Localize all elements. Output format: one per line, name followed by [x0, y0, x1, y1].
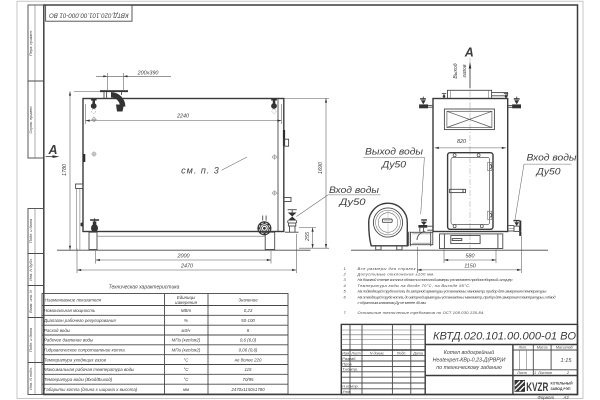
svg-text:мм: мм: [183, 387, 189, 392]
svg-text:1: 1: [534, 371, 536, 375]
svg-text:Ду50: Ду50: [535, 167, 560, 177]
svg-text:Разраб.: Разраб.: [342, 356, 356, 361]
svg-text:°С: °С: [184, 367, 190, 372]
svg-text:Инв. N подл.: Инв. N подл.: [28, 367, 33, 390]
svg-text:КВТД.020.101.00.000-01 ВО: КВТД.020.101.00.000-01 ВО: [433, 330, 576, 342]
svg-text:Техническая характеристика: Техническая характеристика: [109, 284, 180, 290]
svg-text:°С: °С: [184, 377, 190, 382]
svg-text:580: 580: [466, 254, 475, 260]
svg-text:255: 255: [305, 231, 311, 242]
svg-text:Вход воды: Вход воды: [329, 185, 379, 195]
svg-text:Расход воды: Расход воды: [44, 328, 71, 333]
svg-text:Котел водогрейный: Котел водогрейный: [444, 349, 494, 356]
svg-text:На подводящей трубе котла, до: На подводящей трубе котла, до запорной а…: [358, 289, 547, 294]
svg-text:1: 1: [344, 266, 346, 271]
svg-text:КВТД.020.101.00.000-01 ВО: КВТД.020.101.00.000-01 ВО: [49, 11, 129, 18]
svg-text:Температура воды (Вход/Выход): Температура воды (Вход/Выход): [44, 377, 113, 382]
svg-text:Инв. N дубл.: Инв. N дубл.: [28, 258, 33, 281]
svg-text:Формат: Формат: [538, 395, 555, 400]
svg-text:Подп. и дата: Подп. и дата: [28, 327, 33, 352]
svg-text:Изм: Изм: [342, 351, 349, 355]
svg-text:с обратным клапаном Ду не мене: с обратным клапаном Ду не менее 40 мм.: [358, 300, 427, 305]
svg-text:Перв. примен.: Перв. примен.: [28, 30, 33, 56]
svg-text:Гидравлическое сопротивление к: Гидравлическое сопротивление котла: [44, 348, 125, 353]
svg-text:Диапазон рабочего регулировани: Диапазон рабочего регулирования: [43, 318, 116, 323]
svg-text:На боковой стенке котла в обла: На боковой стенке котла в области топочн…: [358, 277, 514, 282]
svg-text:Выход воды: Выход воды: [365, 147, 423, 157]
svg-text:0,06 (0,6): 0,06 (0,6): [239, 348, 258, 353]
svg-text:см. п. 3: см. п. 3: [181, 166, 220, 176]
svg-text:0,6 (6,0): 0,6 (6,0): [240, 338, 257, 343]
svg-text:КОТЕЛЬНЫЙ: КОТЕЛЬНЫЙ: [551, 382, 574, 386]
svg-text:Допустимые отклонения ±100 мм.: Допустимые отклонения ±100 мм.: [357, 272, 435, 277]
svg-text:Значение: Значение: [238, 297, 258, 302]
svg-text:А3: А3: [563, 395, 570, 400]
svg-text:70/95: 70/95: [243, 377, 255, 382]
svg-text:Пров.: Пров.: [342, 361, 352, 366]
svg-text:газов: газов: [462, 64, 468, 77]
svg-text:N докум.: N докум.: [370, 351, 385, 355]
svg-text:Наименование показателя: Наименование показателя: [45, 297, 102, 302]
svg-text:Выход: Выход: [453, 63, 459, 78]
svg-text:Все размеры для справок: Все размеры для справок: [358, 266, 417, 271]
svg-text:Температура воды на Входе 70°С: Температура воды на Входе 70°С, на Выход…: [358, 283, 471, 288]
svg-text:2470х1150х1780: 2470х1150х1780: [230, 387, 265, 392]
svg-text:%: %: [184, 318, 188, 323]
svg-text:2000: 2000: [177, 254, 190, 260]
svg-text:°С: °С: [184, 357, 190, 362]
svg-text:А: А: [464, 46, 474, 60]
svg-text:по техническому заданию: по техническому заданию: [436, 365, 501, 371]
svg-text:Температура уходящих газов: Температура уходящих газов: [44, 357, 107, 362]
svg-text:1150: 1150: [464, 264, 476, 270]
svg-text:Листов: Листов: [537, 371, 552, 375]
svg-text:Масса: Масса: [537, 346, 548, 350]
svg-text:2240: 2240: [176, 114, 189, 120]
svg-text:м3/ч: м3/ч: [182, 328, 192, 333]
svg-text:1:15: 1:15: [561, 358, 573, 364]
svg-text:Номинальная мощность: Номинальная мощность: [44, 308, 96, 313]
svg-text:МПа (кгс/см2): МПа (кгс/см2): [172, 338, 201, 343]
svg-text:Рабочее давление воды: Рабочее давление воды: [44, 338, 94, 343]
svg-text:Лист: Лист: [516, 371, 527, 375]
svg-text:На отводящей трубе котла, до з: На отводящей трубе котла, до запорной ар…: [358, 294, 557, 299]
svg-text:Остальные технические требован: Остальные технические требования по ОСТ …: [358, 310, 485, 315]
svg-text:Подп. и дата: Подп. и дата: [28, 218, 33, 243]
svg-text:Утв.: Утв.: [342, 389, 351, 394]
svg-text:МПа (кгс/см2): МПа (кгс/см2): [172, 348, 201, 353]
svg-text:Габариты котла (длина х ширина: Габариты котла (длина х ширина х высота): [44, 387, 138, 392]
svg-text:Т.контр.: Т.контр.: [342, 367, 358, 372]
svg-text:Справ. примен.: Справ. примен.: [28, 106, 33, 134]
svg-text:МВт: МВт: [181, 308, 192, 313]
svg-text:Масштаб: Масштаб: [556, 346, 574, 350]
svg-text:Лит.: Лит.: [518, 346, 527, 350]
svg-text:KVZR: KVZR: [526, 382, 548, 394]
svg-text:Н.контр.: Н.контр.: [342, 384, 358, 389]
svg-text:Подп.: Подп.: [397, 351, 407, 355]
svg-text:не более 220: не более 220: [235, 357, 262, 362]
svg-text:Лист: Лист: [350, 351, 360, 355]
svg-text:измерения: измерения: [175, 300, 198, 305]
svg-text:Вход воды: Вход воды: [527, 153, 577, 163]
svg-text:Ду50: Ду50: [381, 160, 406, 170]
svg-text:820: 820: [457, 139, 466, 145]
svg-text:Ду50: Ду50: [338, 197, 365, 207]
svg-text:ЗАВОД РЭП: ЗАВОД РЭП: [551, 387, 572, 391]
svg-text:1780: 1780: [62, 164, 68, 176]
svg-text:Heatexpert-КВр-0,23-Д(РВР)И: Heatexpert-КВр-0,23-Д(РВР)И: [433, 357, 506, 363]
svg-text:Дата: Дата: [412, 351, 422, 355]
svg-text:Взам. инв. N: Взам. инв. N: [28, 290, 33, 313]
svg-text:115: 115: [245, 367, 253, 372]
svg-text:Максимальная рабочая температу: Максимальная рабочая температура воды: [44, 367, 135, 372]
svg-text:50-100: 50-100: [241, 318, 255, 323]
svg-text:2470: 2470: [180, 264, 193, 270]
svg-text:200х390: 200х390: [137, 70, 159, 76]
svg-text:А: А: [48, 143, 58, 157]
svg-text:0,23: 0,23: [244, 308, 253, 313]
svg-text:1690: 1690: [318, 162, 324, 174]
